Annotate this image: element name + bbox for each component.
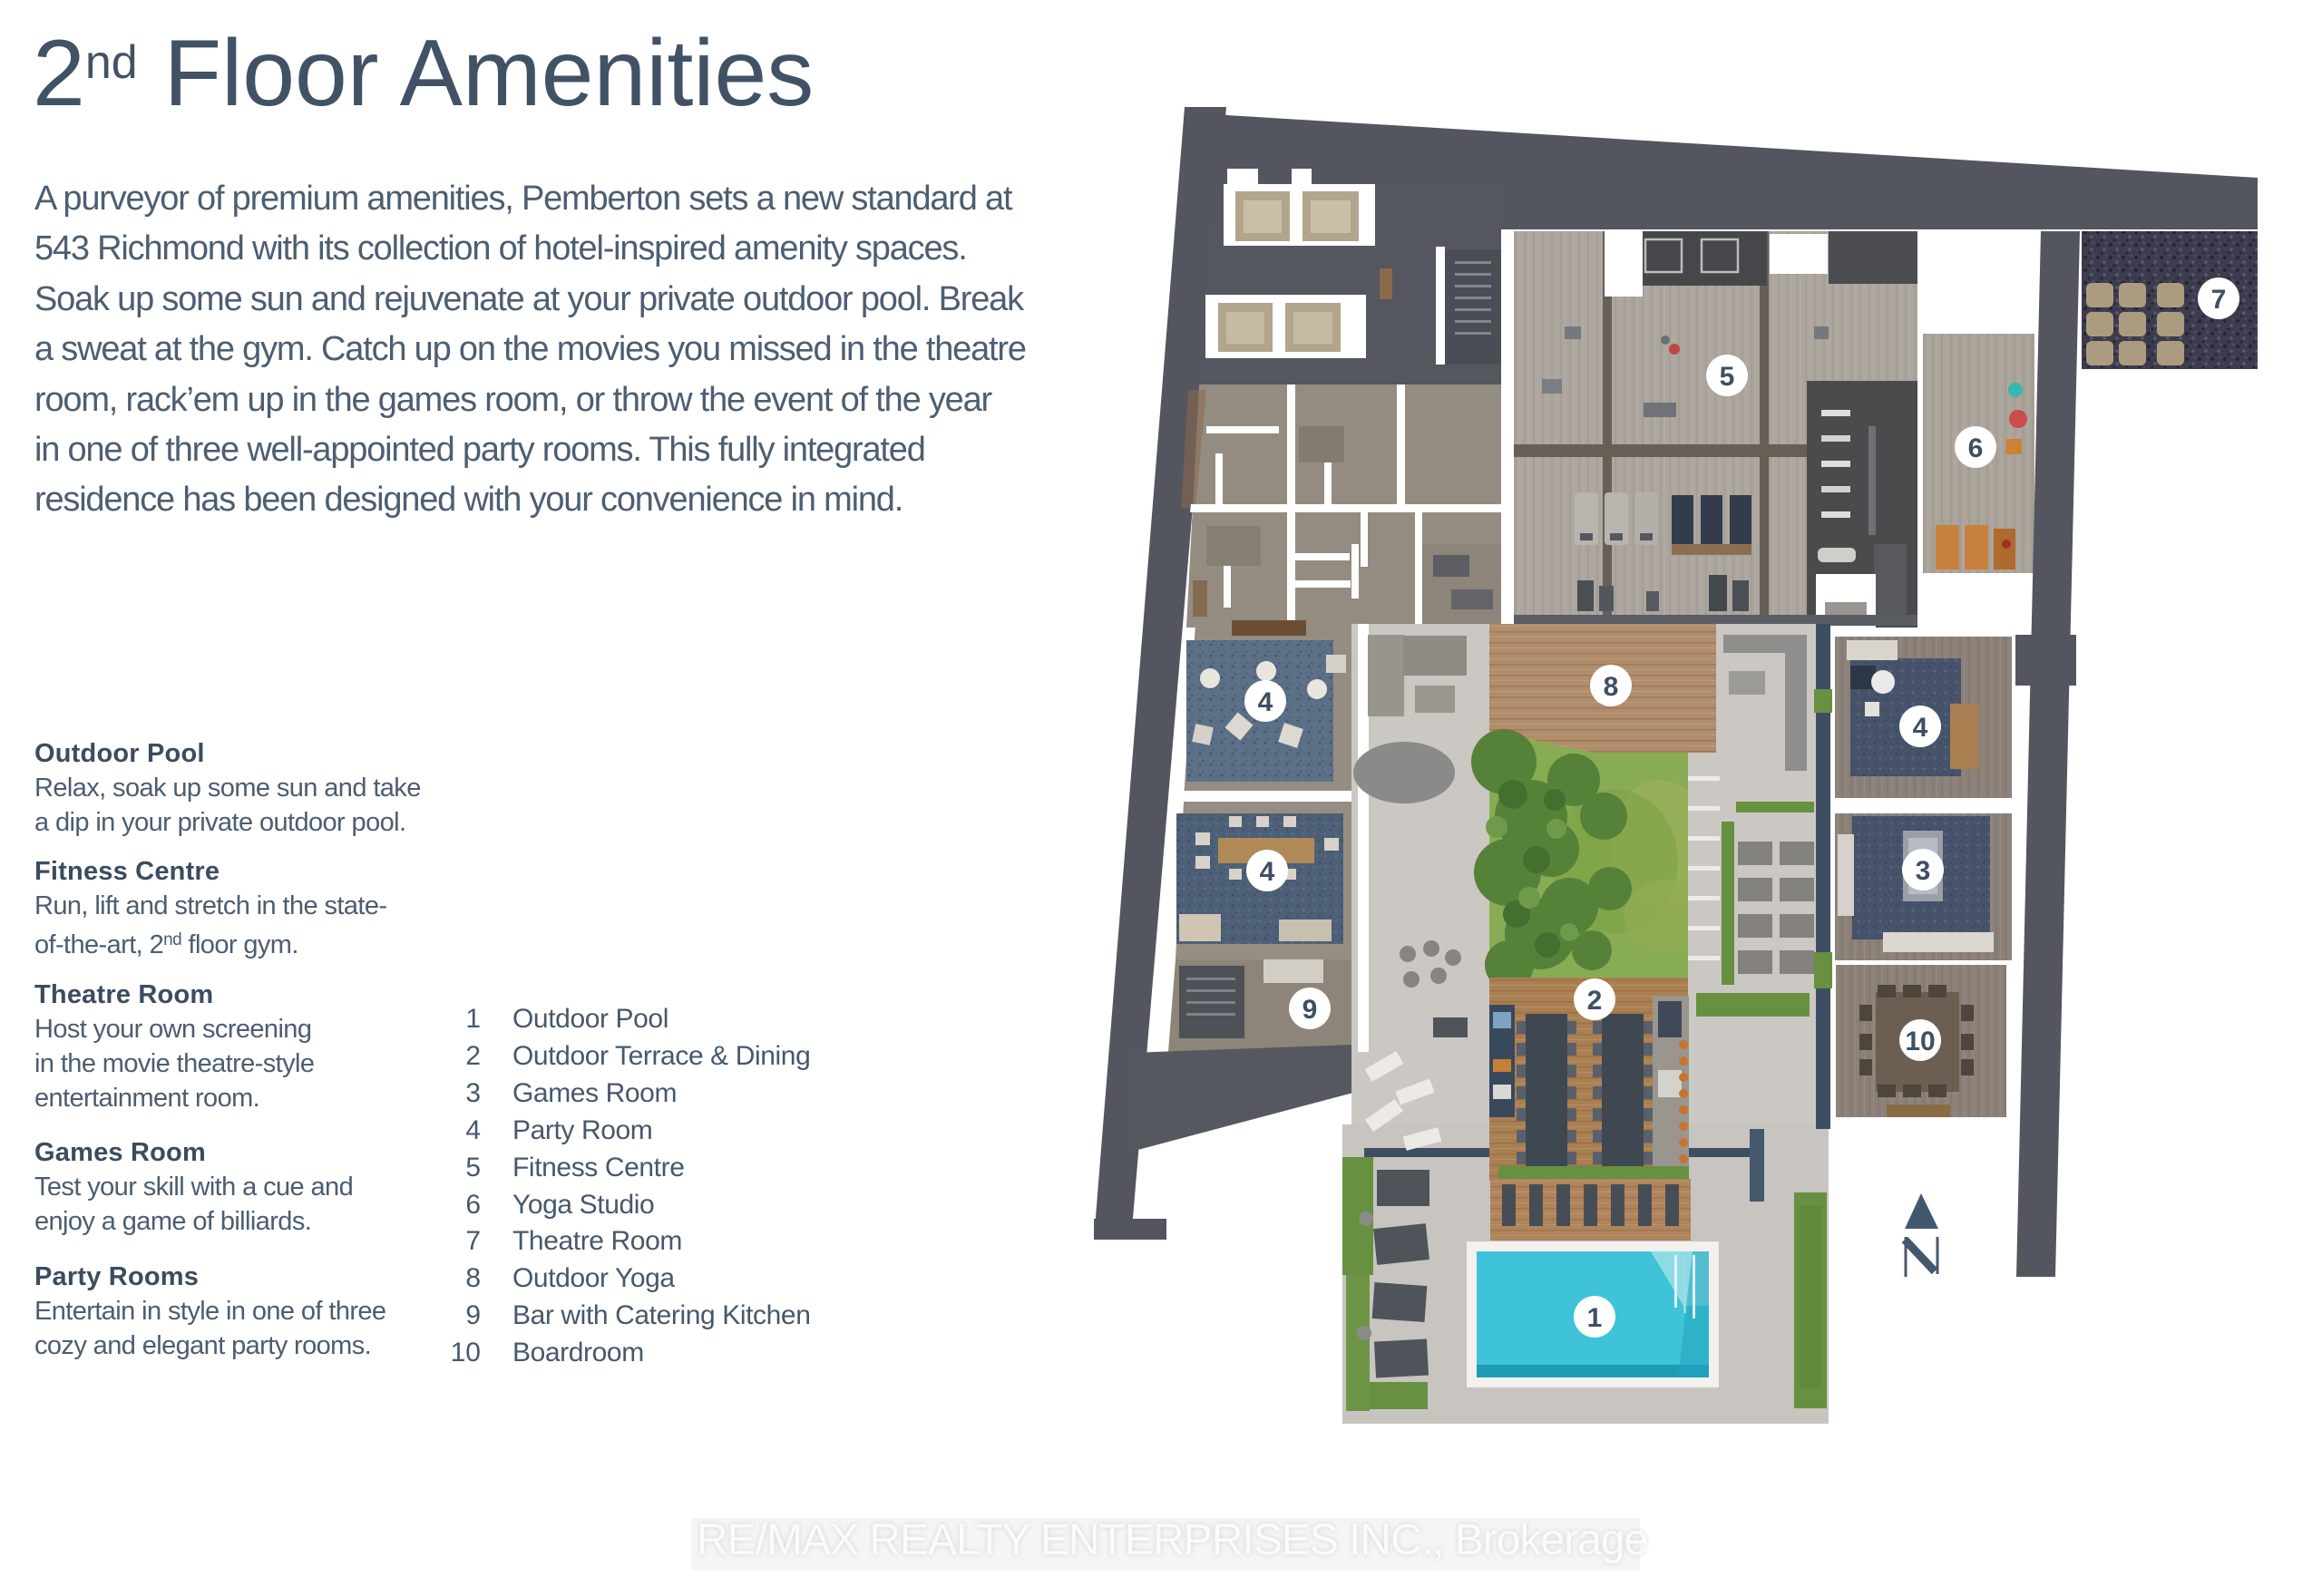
svg-text:8: 8 — [1604, 672, 1619, 702]
svg-text:2: 2 — [1587, 986, 1603, 1016]
svg-text:3: 3 — [1916, 856, 1931, 886]
svg-text:10: 10 — [1905, 1027, 1935, 1056]
svg-text:9: 9 — [1302, 995, 1318, 1025]
svg-text:5: 5 — [1720, 362, 1735, 392]
svg-text:7: 7 — [2211, 285, 2227, 315]
svg-text:1: 1 — [1587, 1303, 1603, 1333]
svg-text:4: 4 — [1258, 687, 1273, 717]
svg-text:4: 4 — [1913, 713, 1928, 743]
svg-text:6: 6 — [1968, 433, 1984, 463]
svg-text:4: 4 — [1260, 857, 1275, 887]
